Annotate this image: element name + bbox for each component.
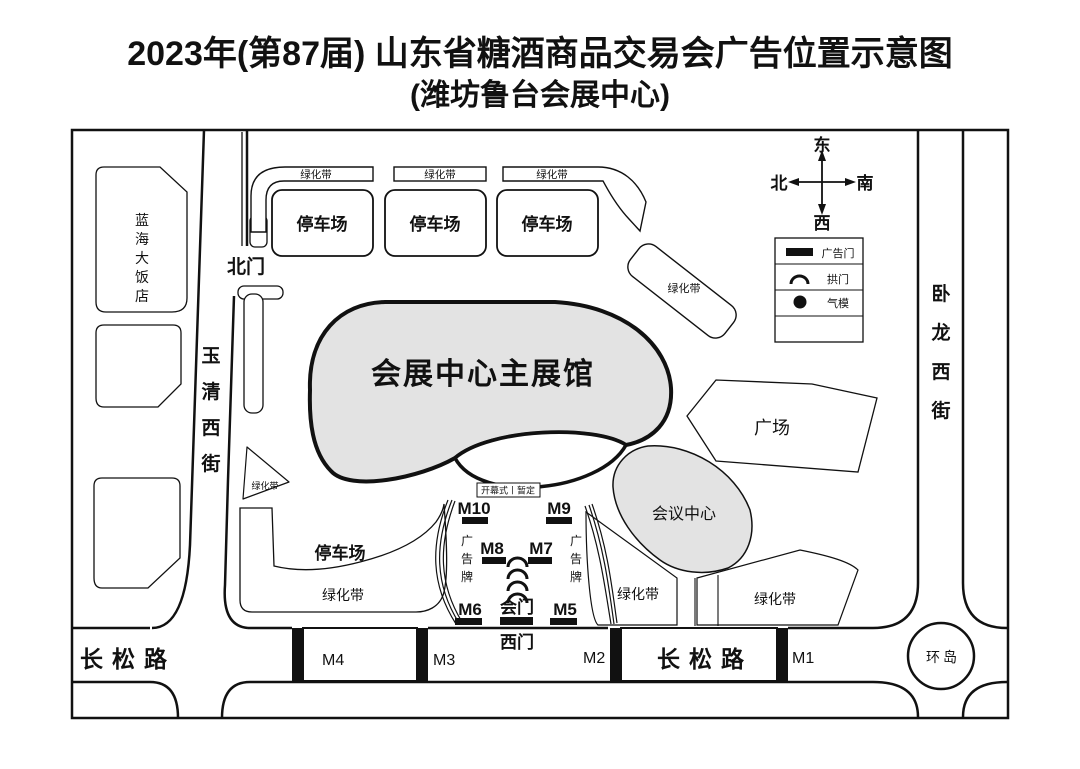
marker-m6-bar <box>455 618 482 625</box>
marker-m8-bar <box>482 557 506 564</box>
roundabout-label: 环岛 <box>926 649 960 665</box>
billboard-right-label: 广告牌 <box>570 534 582 584</box>
legend-balloon-label: 气模 <box>827 296 849 310</box>
parking-3-label: 停车场 <box>522 214 573 234</box>
billboard-left-label: 广告牌 <box>461 534 473 584</box>
compass-west: 西 <box>814 214 831 233</box>
parking-2-label: 停车场 <box>410 214 461 234</box>
green-belt-sw-label: 绿化带 <box>322 587 364 603</box>
marker-m6-label: M6 <box>458 600 482 619</box>
map-page: 2023年(第87届) 山东省糖酒商品交易会广告位置示意图 (潍坊鲁台会展中心)… <box>0 0 1080 769</box>
marker-m10-label: M10 <box>457 499 490 518</box>
main-hall-label: 会展中心主展馆 <box>371 357 595 391</box>
marker-m3-label: M3 <box>433 652 455 669</box>
green-belt-1-label: 绿化带 <box>300 168 332 181</box>
marker-m7-bar <box>528 557 552 564</box>
marker-m10-bar <box>462 517 488 524</box>
balloon-icon <box>794 296 807 309</box>
compass-south: 南 <box>857 173 874 193</box>
page-title-line2: (潍坊鲁台会展中心) <box>410 78 670 112</box>
building-2 <box>96 325 181 407</box>
plaza-label: 广场 <box>754 418 790 438</box>
marker-m2-gate <box>610 628 621 681</box>
page-title-line1: 2023年(第87届) 山东省糖酒商品交易会广告位置示意图 <box>127 34 953 73</box>
road-box-m4-m3 <box>303 628 417 681</box>
green-belt-3-label: 绿化带 <box>536 168 568 181</box>
parking-1-label: 停车场 <box>297 214 348 234</box>
north-gate-fence-vertical <box>244 294 263 413</box>
marker-m7-label: M7 <box>529 539 553 558</box>
marker-m8-label: M8 <box>480 539 504 558</box>
marker-m2-label: M2 <box>583 650 605 667</box>
hotel-label: 蓝海大饭店 <box>135 212 149 304</box>
changsong-road-label-center: 长松路 <box>657 646 753 672</box>
venue-map: 2023年(第87届) 山东省糖酒商品交易会广告位置示意图 (潍坊鲁台会展中心)… <box>0 0 1080 769</box>
marker-m4-label: M4 <box>322 652 344 669</box>
marker-m5-bar <box>550 618 577 625</box>
marker-m5-label: M5 <box>553 600 577 619</box>
compass-north: 北 <box>771 174 788 193</box>
green-belt-slanted-label: 绿化带 <box>668 281 701 295</box>
marker-m1-gate <box>777 628 788 681</box>
legend-ad-gate-label: 广告门 <box>822 246 855 260</box>
legend: 广告门 拱门 气模 <box>775 238 863 342</box>
marker-m4-gate <box>292 628 303 681</box>
legend-arch-label: 拱门 <box>827 272 849 286</box>
hui-gate-bar <box>500 617 533 625</box>
green-belt-mid-left-label: 绿化带 <box>617 586 659 602</box>
changsong-road-label-left: 长松路 <box>80 646 176 672</box>
west-gate-label: 西门 <box>500 632 534 652</box>
parking-sw-label: 停车场 <box>315 543 366 563</box>
green-belt-2-label: 绿化带 <box>424 168 456 181</box>
ad-gate-bar-icon <box>786 248 813 256</box>
opening-note-label: 开幕式丨暂定 <box>481 485 535 496</box>
compass-east: 东 <box>814 135 831 155</box>
marker-m3-gate <box>417 628 428 681</box>
marker-m9-bar <box>546 517 572 524</box>
conference-center-label: 会议中心 <box>652 505 716 523</box>
green-belt-mid-right-label: 绿化带 <box>754 591 796 607</box>
north-gate-label: 北门 <box>227 255 265 278</box>
green-belt-triangle-label: 绿化带 <box>251 480 278 491</box>
hui-gate-label: 会门 <box>500 597 534 617</box>
marker-m1-label: M1 <box>792 650 814 667</box>
marker-m9-label: M9 <box>547 499 571 518</box>
